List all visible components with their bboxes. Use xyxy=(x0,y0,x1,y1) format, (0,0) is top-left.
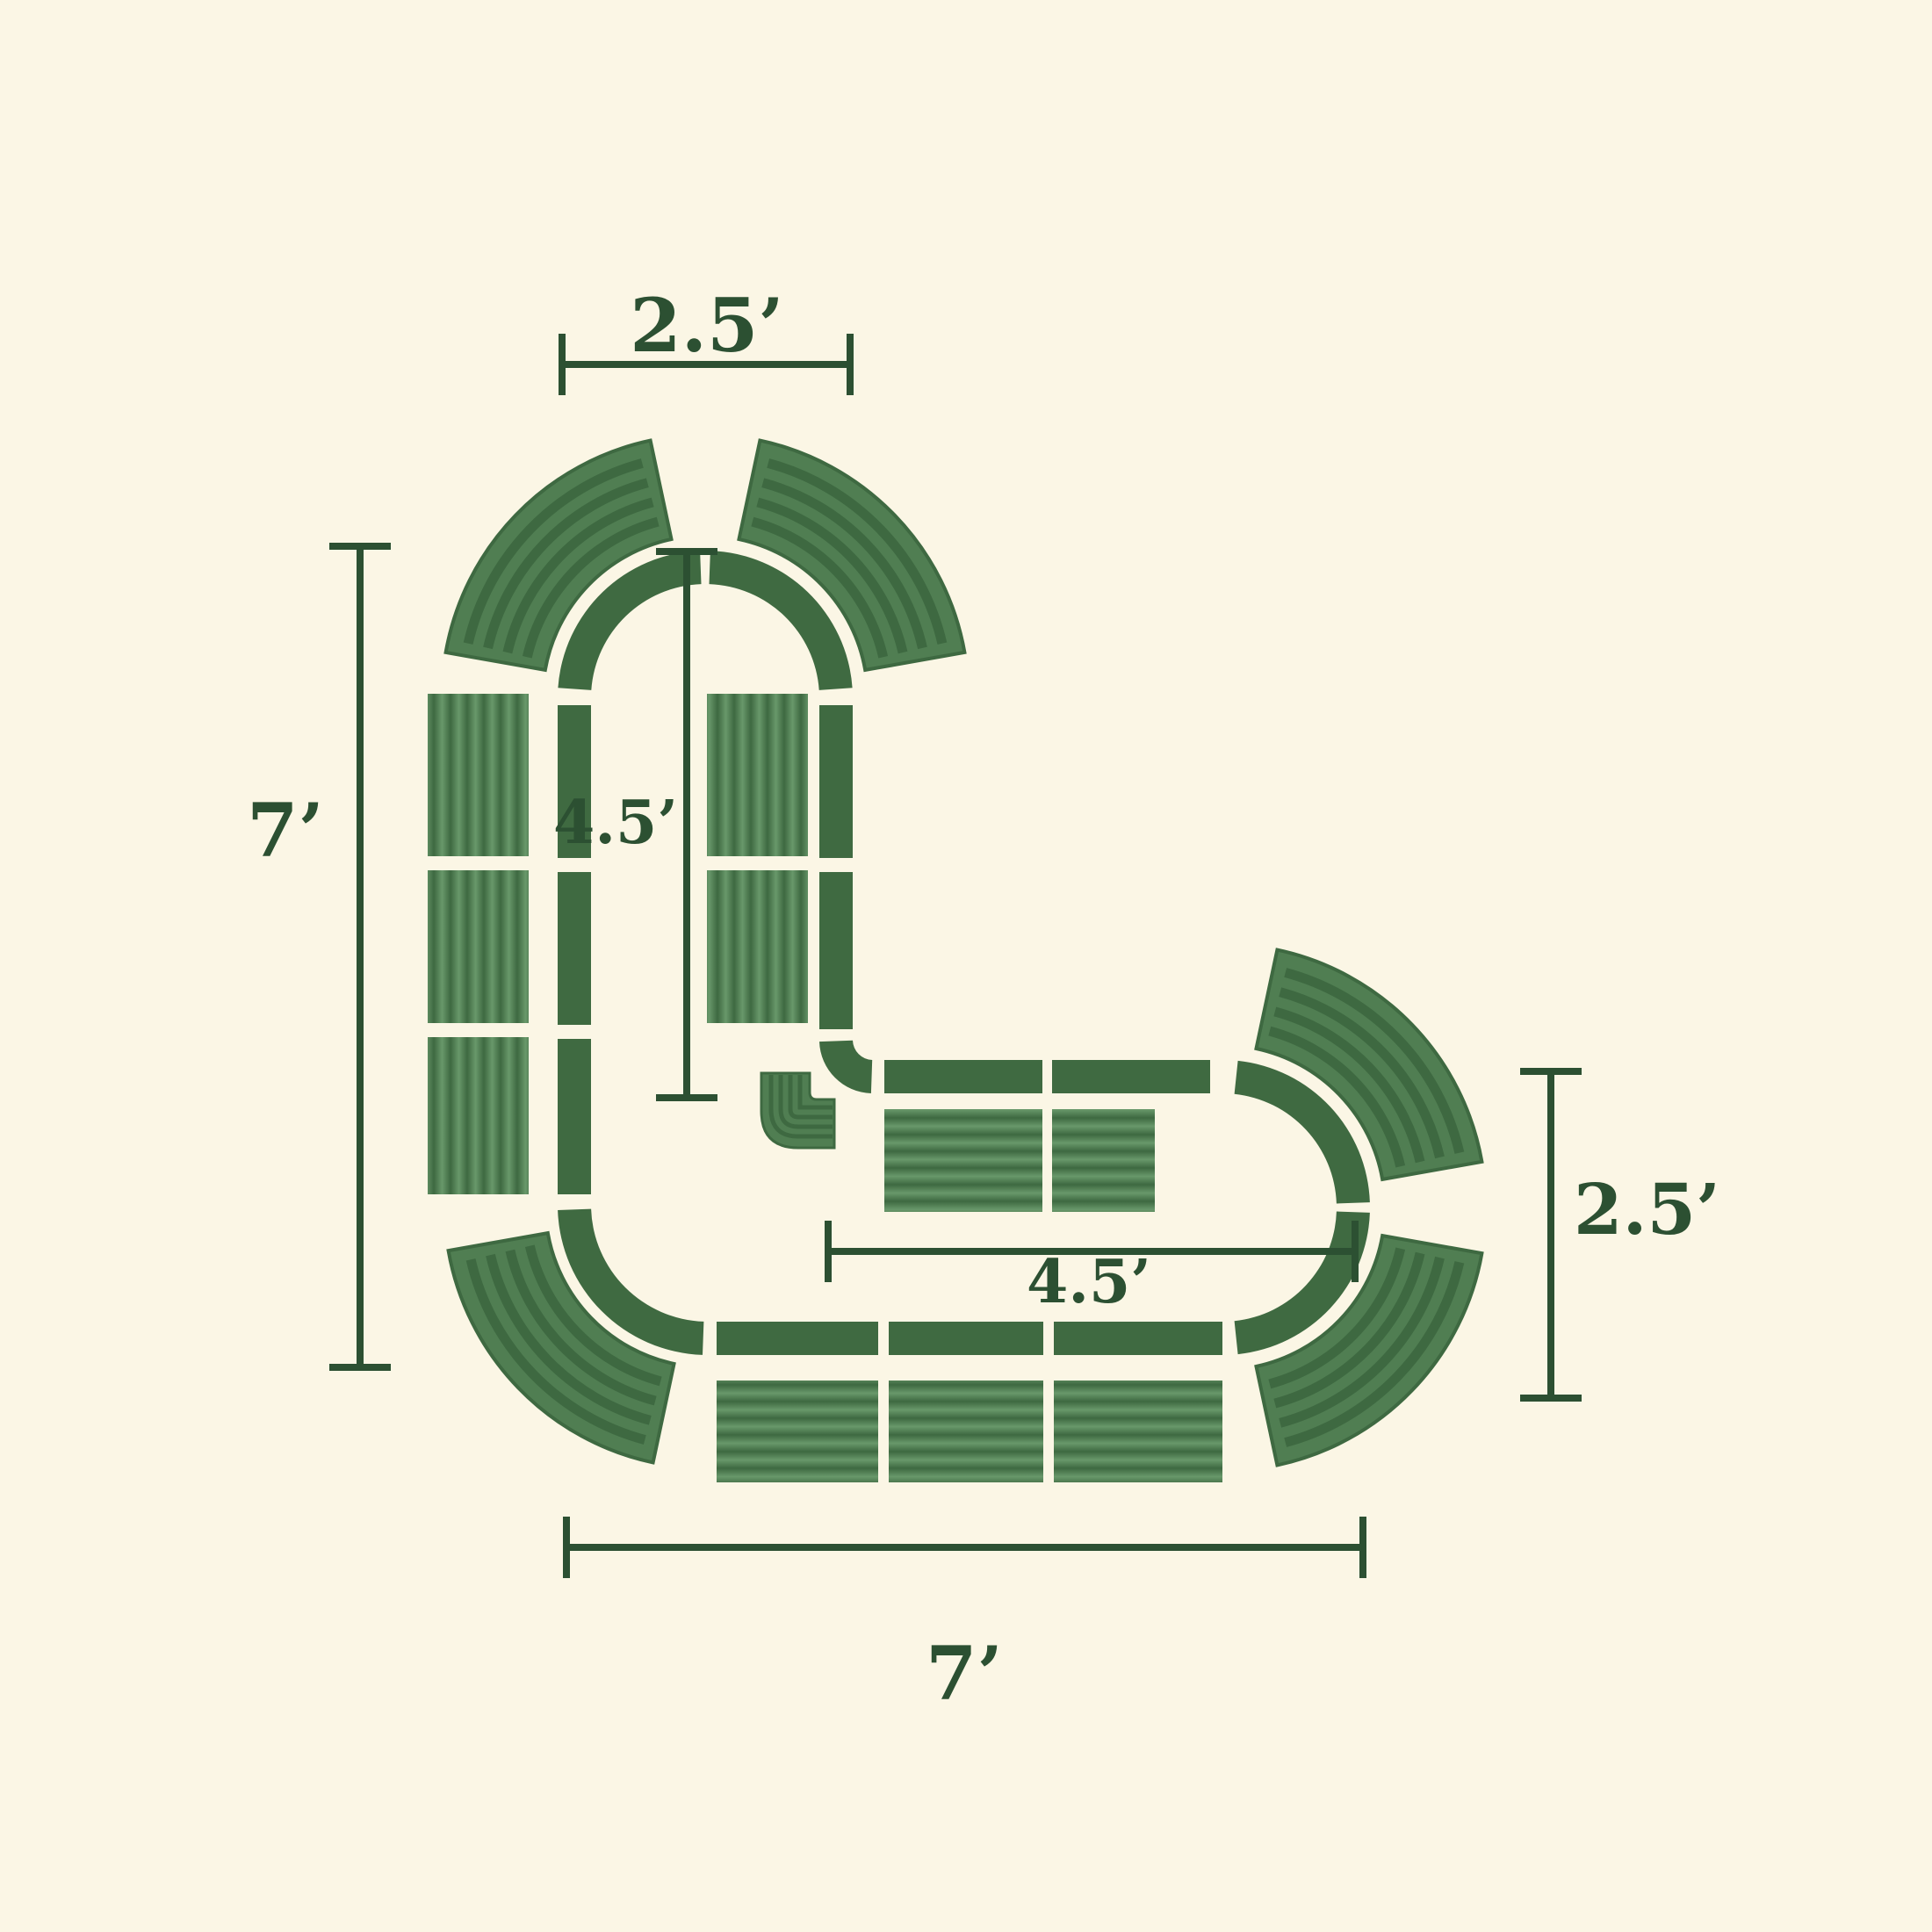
side-panel xyxy=(717,1381,878,1482)
side-panel xyxy=(428,694,529,856)
dim-label-inner-height: 4.5’ xyxy=(553,788,678,858)
bed-wall-segment xyxy=(819,705,853,858)
side-panel xyxy=(707,694,808,856)
dim-label-left-height: 7’ xyxy=(247,787,324,874)
dim-label-inner-length: 4.5’ xyxy=(1027,1247,1151,1317)
side-panel xyxy=(428,870,529,1023)
bed-wall-segment xyxy=(558,1039,591,1194)
bed-wall-segment xyxy=(717,1322,878,1355)
side-panel xyxy=(1052,1109,1155,1212)
dim-label-right-width: 2.5’ xyxy=(1574,1168,1720,1251)
side-panel xyxy=(889,1381,1043,1482)
bed-wall-segment xyxy=(884,1060,1042,1093)
bed-wall-segment xyxy=(1052,1060,1210,1093)
dim-label-bottom-length: 7’ xyxy=(926,1630,1003,1717)
bed-wall-segment xyxy=(558,872,591,1025)
side-panel xyxy=(884,1109,1042,1212)
garden-bed-diagram: 2.5’ 7’ 4.5’ 4.5’ 2.5’ 7’ xyxy=(0,0,1932,1932)
canvas: 2.5’ 7’ 4.5’ 4.5’ 2.5’ 7’ xyxy=(0,0,1932,1932)
side-panel xyxy=(707,870,808,1023)
dim-label-top-width: 2.5’ xyxy=(630,282,783,369)
bed-wall-segment xyxy=(819,872,853,1029)
side-panel xyxy=(428,1037,529,1194)
bed-wall-segment xyxy=(889,1322,1043,1355)
bed-wall-segment xyxy=(1054,1322,1222,1355)
side-panel xyxy=(1054,1381,1222,1482)
